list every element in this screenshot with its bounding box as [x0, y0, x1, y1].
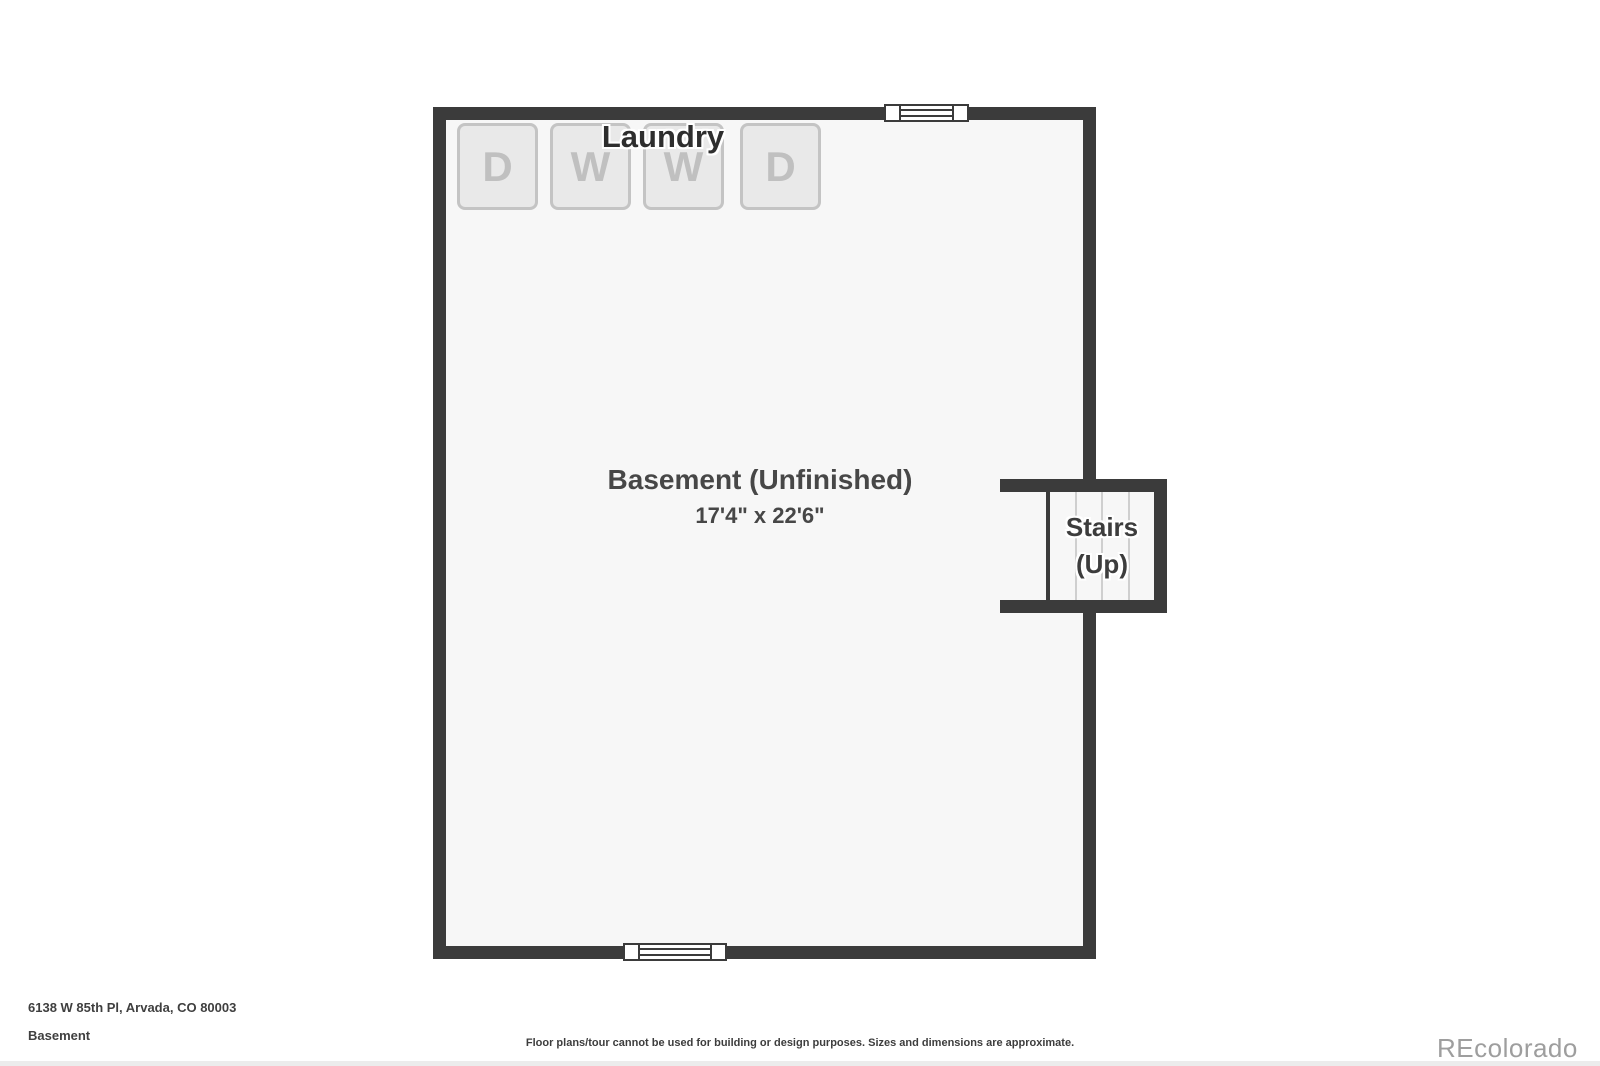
window-bottom-wall: [623, 943, 727, 961]
window-cap-divider: [952, 106, 954, 120]
window-top-wall: [884, 104, 969, 122]
appliance-dryer-left: D: [457, 123, 538, 210]
window-cap-divider: [710, 945, 712, 959]
window-pane-line: [640, 954, 710, 956]
room-label: Basement (Unfinished) 17'4" x 22'6": [608, 462, 913, 534]
property-address: 6138 W 85th Pl, Arvada, CO 80003: [28, 1000, 236, 1015]
appliance-letter: D: [765, 143, 795, 191]
window-pane-line: [901, 109, 952, 111]
stairs-wall-top: [1000, 479, 1167, 492]
recolorado-watermark: REcolorado: [1437, 1033, 1578, 1064]
room-name: Basement (Unfinished): [608, 462, 913, 498]
disclaimer-text: Floor plans/tour cannot be used for buil…: [526, 1037, 1074, 1049]
appliance-dryer-right: D: [740, 123, 821, 210]
window-pane-line: [901, 115, 952, 117]
floorplan-page: Stairs (Up) D W W D Laundry Basement (Un…: [0, 0, 1600, 1066]
appliance-letter: D: [482, 143, 512, 191]
stairs-label: Stairs (Up): [1046, 509, 1158, 583]
room-dimensions: 17'4" x 22'6": [608, 498, 913, 534]
stairs-label-line1: Stairs: [1046, 509, 1158, 546]
stairs-label-line2: (Up): [1046, 546, 1158, 583]
window-pane-line: [640, 948, 710, 950]
stairs-wall-bottom: [1000, 600, 1167, 613]
floor-name: Basement: [28, 1028, 90, 1043]
bottom-strip: [0, 1061, 1600, 1066]
laundry-label: Laundry: [602, 119, 724, 155]
